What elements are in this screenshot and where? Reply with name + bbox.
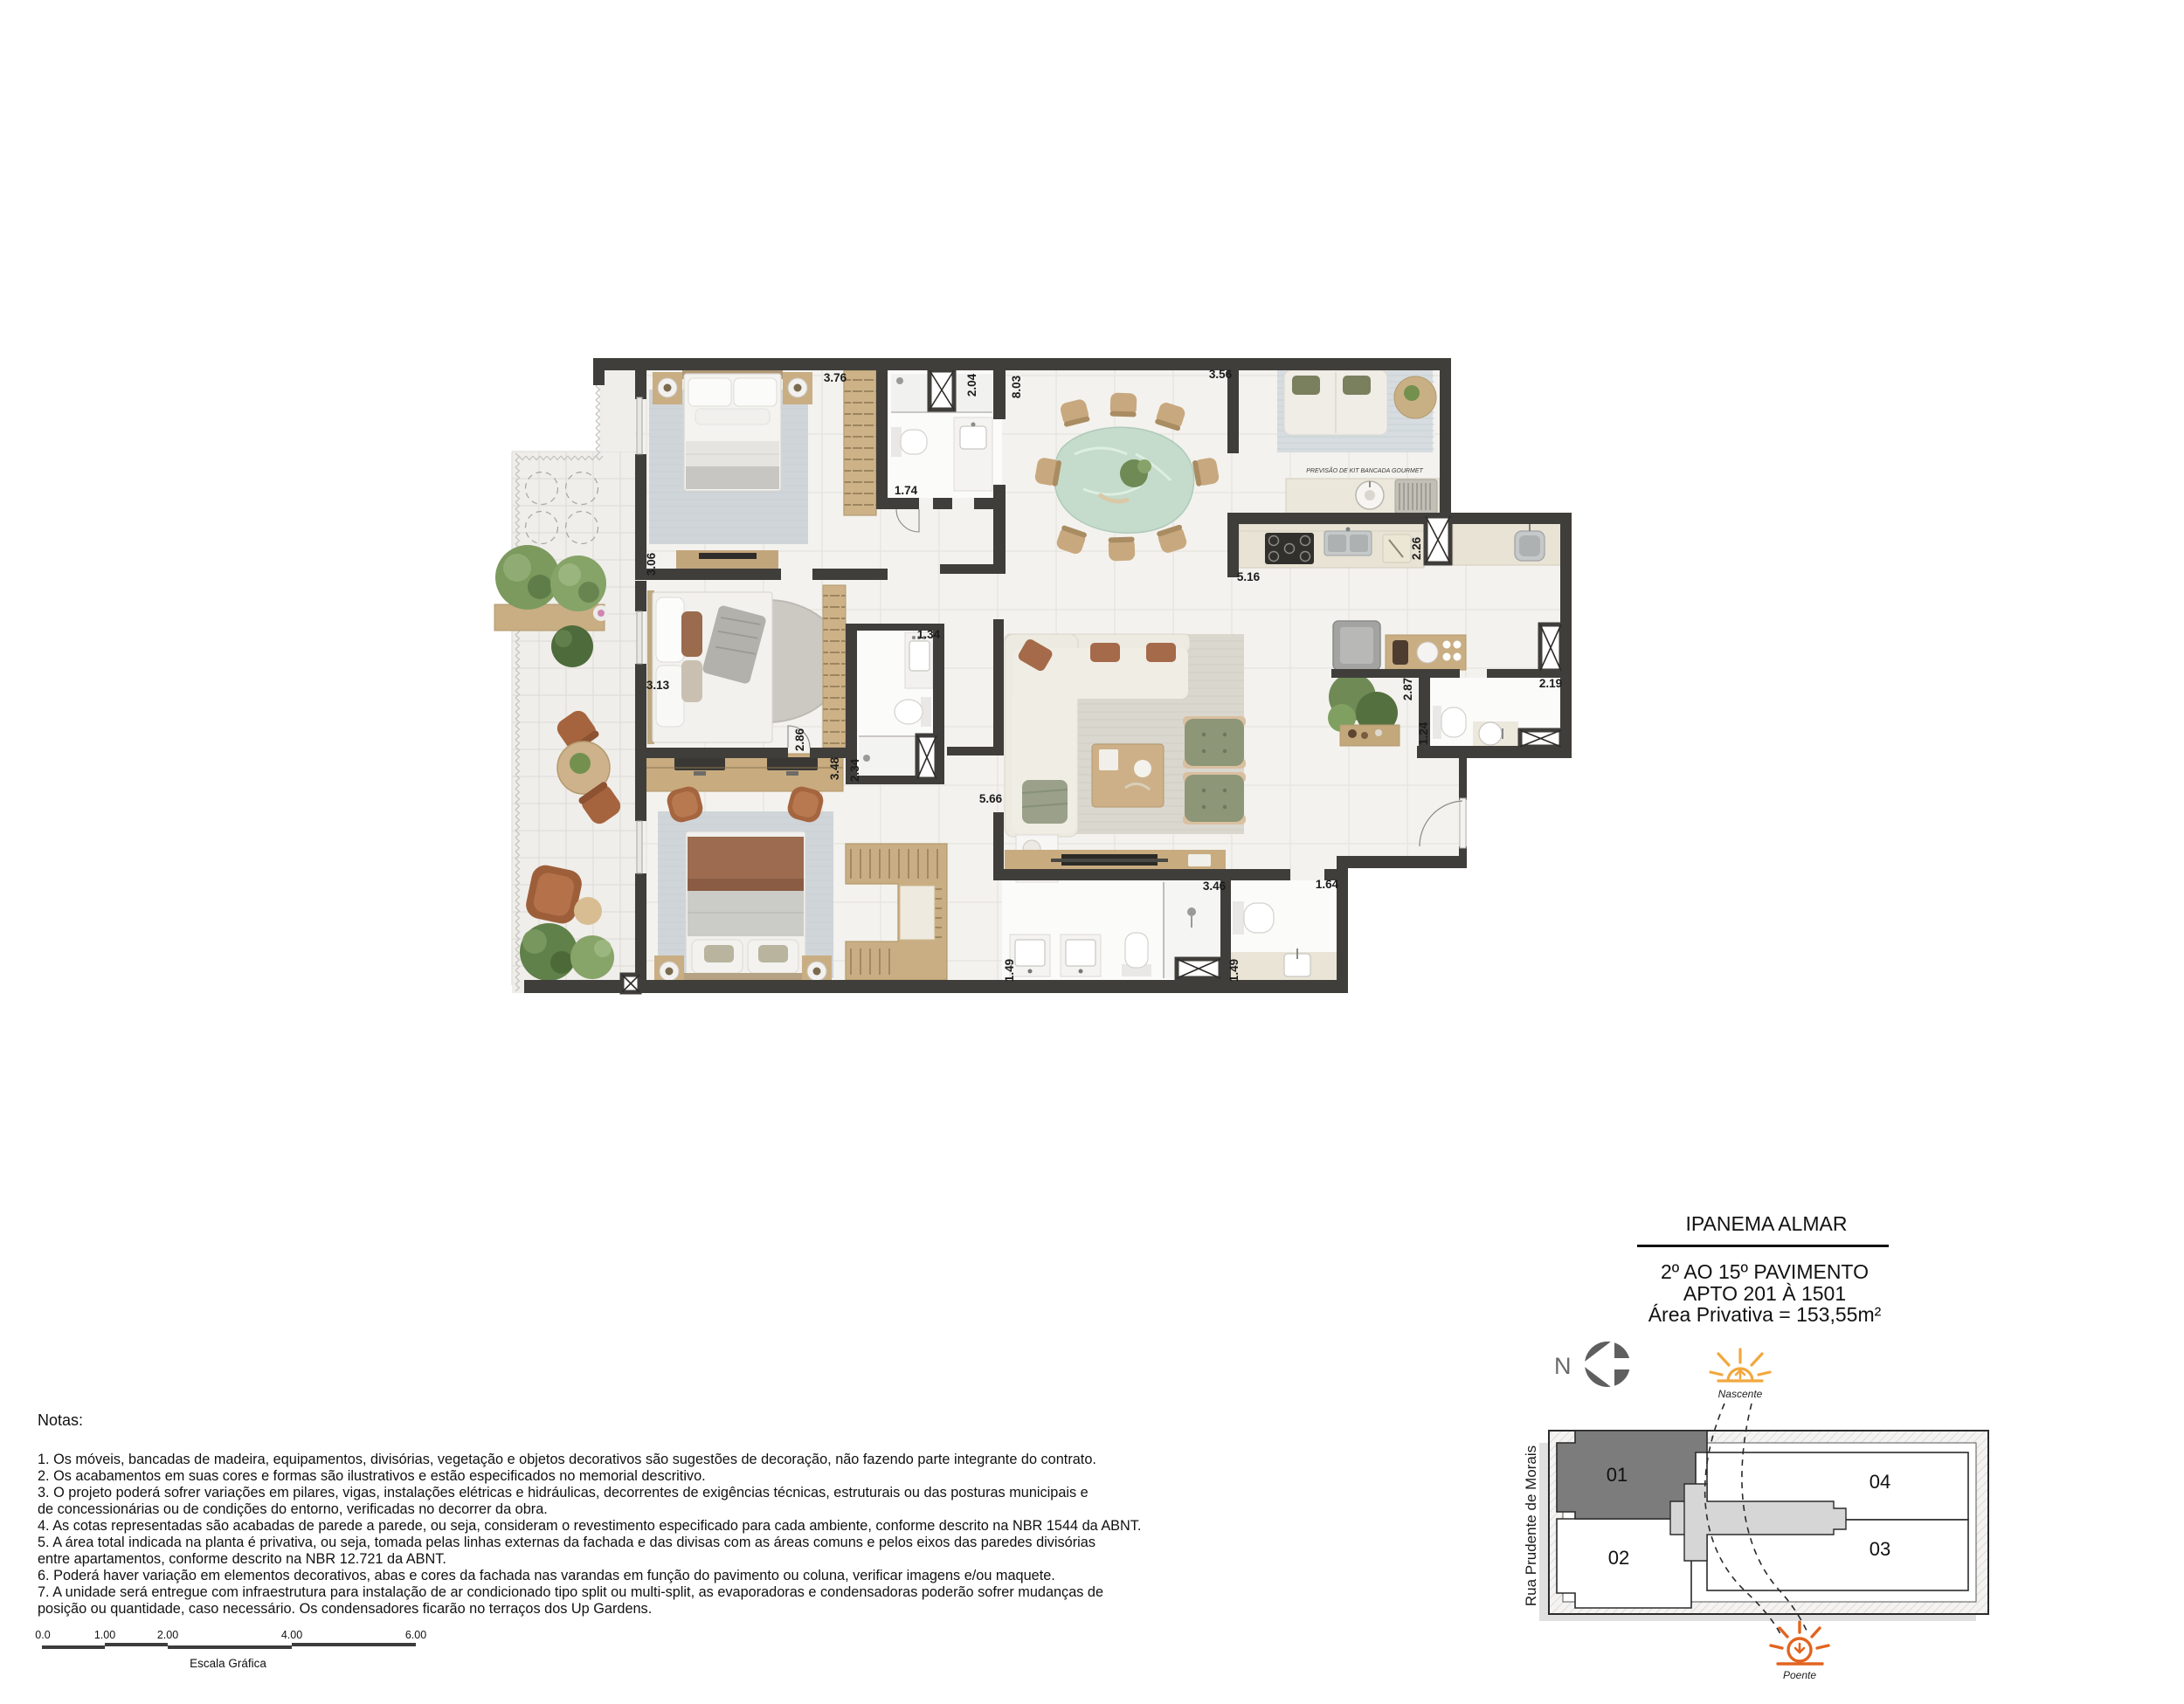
svg-text:4. As cotas representadas são: 4. As cotas representadas são acabadas d… <box>38 1518 1141 1534</box>
svg-text:01: 01 <box>1607 1464 1628 1486</box>
svg-text:2.00: 2.00 <box>157 1629 178 1641</box>
svg-text:Notas:: Notas: <box>38 1411 83 1429</box>
svg-text:5. A área total indicada na pl: 5. A área total indicada na planta é pri… <box>38 1535 1095 1550</box>
svg-text:1.64: 1.64 <box>1316 878 1339 891</box>
svg-text:3. O projeto poderá sofrer var: 3. O projeto poderá sofrer variações em … <box>38 1485 1089 1500</box>
svg-text:6.00: 6.00 <box>405 1629 426 1641</box>
svg-text:5.66: 5.66 <box>979 792 1003 805</box>
svg-text:8.03: 8.03 <box>1010 375 1023 398</box>
svg-text:3.76: 3.76 <box>824 371 847 384</box>
svg-text:5.16: 5.16 <box>1237 570 1261 583</box>
svg-text:7. A unidade será entregue com: 7. A unidade será entregue com infraestr… <box>38 1584 1103 1600</box>
svg-text:1.49: 1.49 <box>1003 959 1016 982</box>
svg-text:02: 02 <box>1608 1547 1629 1569</box>
svg-text:3.56: 3.56 <box>1209 368 1233 381</box>
svg-text:04: 04 <box>1870 1471 1890 1493</box>
svg-text:1.49: 1.49 <box>1227 959 1241 982</box>
svg-text:IPANEMA ALMAR: IPANEMA ALMAR <box>1686 1212 1848 1235</box>
svg-text:4.00: 4.00 <box>281 1629 302 1641</box>
svg-text:2.26: 2.26 <box>1410 536 1423 560</box>
svg-text:1. Os móveis, bancadas de made: 1. Os móveis, bancadas de madeira, equip… <box>38 1452 1096 1467</box>
svg-text:3.13: 3.13 <box>646 679 670 692</box>
svg-text:Rua Prudente de Morais: Rua Prudente de Morais <box>1523 1445 1539 1606</box>
svg-text:de concessionárias ou de condi: de concessionárias ou de condições do en… <box>38 1501 548 1517</box>
svg-text:0.0: 0.0 <box>35 1629 50 1641</box>
svg-text:2.87: 2.87 <box>1401 678 1414 700</box>
svg-text:1.00: 1.00 <box>94 1629 115 1641</box>
svg-text:posição ou quantidade, caso ne: posição ou quantidade, caso necessário. … <box>38 1601 652 1617</box>
svg-text:2. Os acabamentos em suas core: 2. Os acabamentos em suas cores e formas… <box>38 1468 706 1484</box>
svg-text:2.19: 2.19 <box>1539 677 1562 690</box>
svg-text:Nascente: Nascente <box>1718 1388 1763 1400</box>
svg-text:2.86: 2.86 <box>793 728 806 751</box>
svg-text:3.06: 3.06 <box>645 552 658 576</box>
svg-text:3.46: 3.46 <box>1203 880 1227 893</box>
svg-text:2.04: 2.04 <box>965 373 978 397</box>
svg-text:2º AO 15º PAVIMENTO: 2º AO 15º PAVIMENTO <box>1661 1260 1869 1283</box>
svg-text:1.74: 1.74 <box>895 484 918 497</box>
svg-text:APTO 201 À 1501: APTO 201 À 1501 <box>1683 1282 1846 1305</box>
svg-text:3.48: 3.48 <box>828 756 841 780</box>
svg-text:Área Privativa = 153,55m²: Área Privativa = 153,55m² <box>1648 1303 1882 1326</box>
svg-text:2.34: 2.34 <box>848 758 861 782</box>
svg-text:6. Poderá haver variação em el: 6. Poderá haver variação em elementos de… <box>38 1568 1055 1583</box>
svg-text:03: 03 <box>1870 1538 1890 1560</box>
svg-text:entre apartamentos, conforme d: entre apartamentos, conforme descrito na… <box>38 1551 446 1567</box>
svg-text:1.24: 1.24 <box>1417 721 1430 745</box>
svg-text:N: N <box>1554 1353 1572 1379</box>
svg-text:Escala Gráfica: Escala Gráfica <box>190 1657 266 1670</box>
svg-text:PREVISÃO DE KIT BANCADA GOURME: PREVISÃO DE KIT BANCADA GOURMET <box>1306 466 1423 474</box>
svg-text:1.34: 1.34 <box>917 628 941 641</box>
svg-text:Poente: Poente <box>1783 1669 1816 1681</box>
